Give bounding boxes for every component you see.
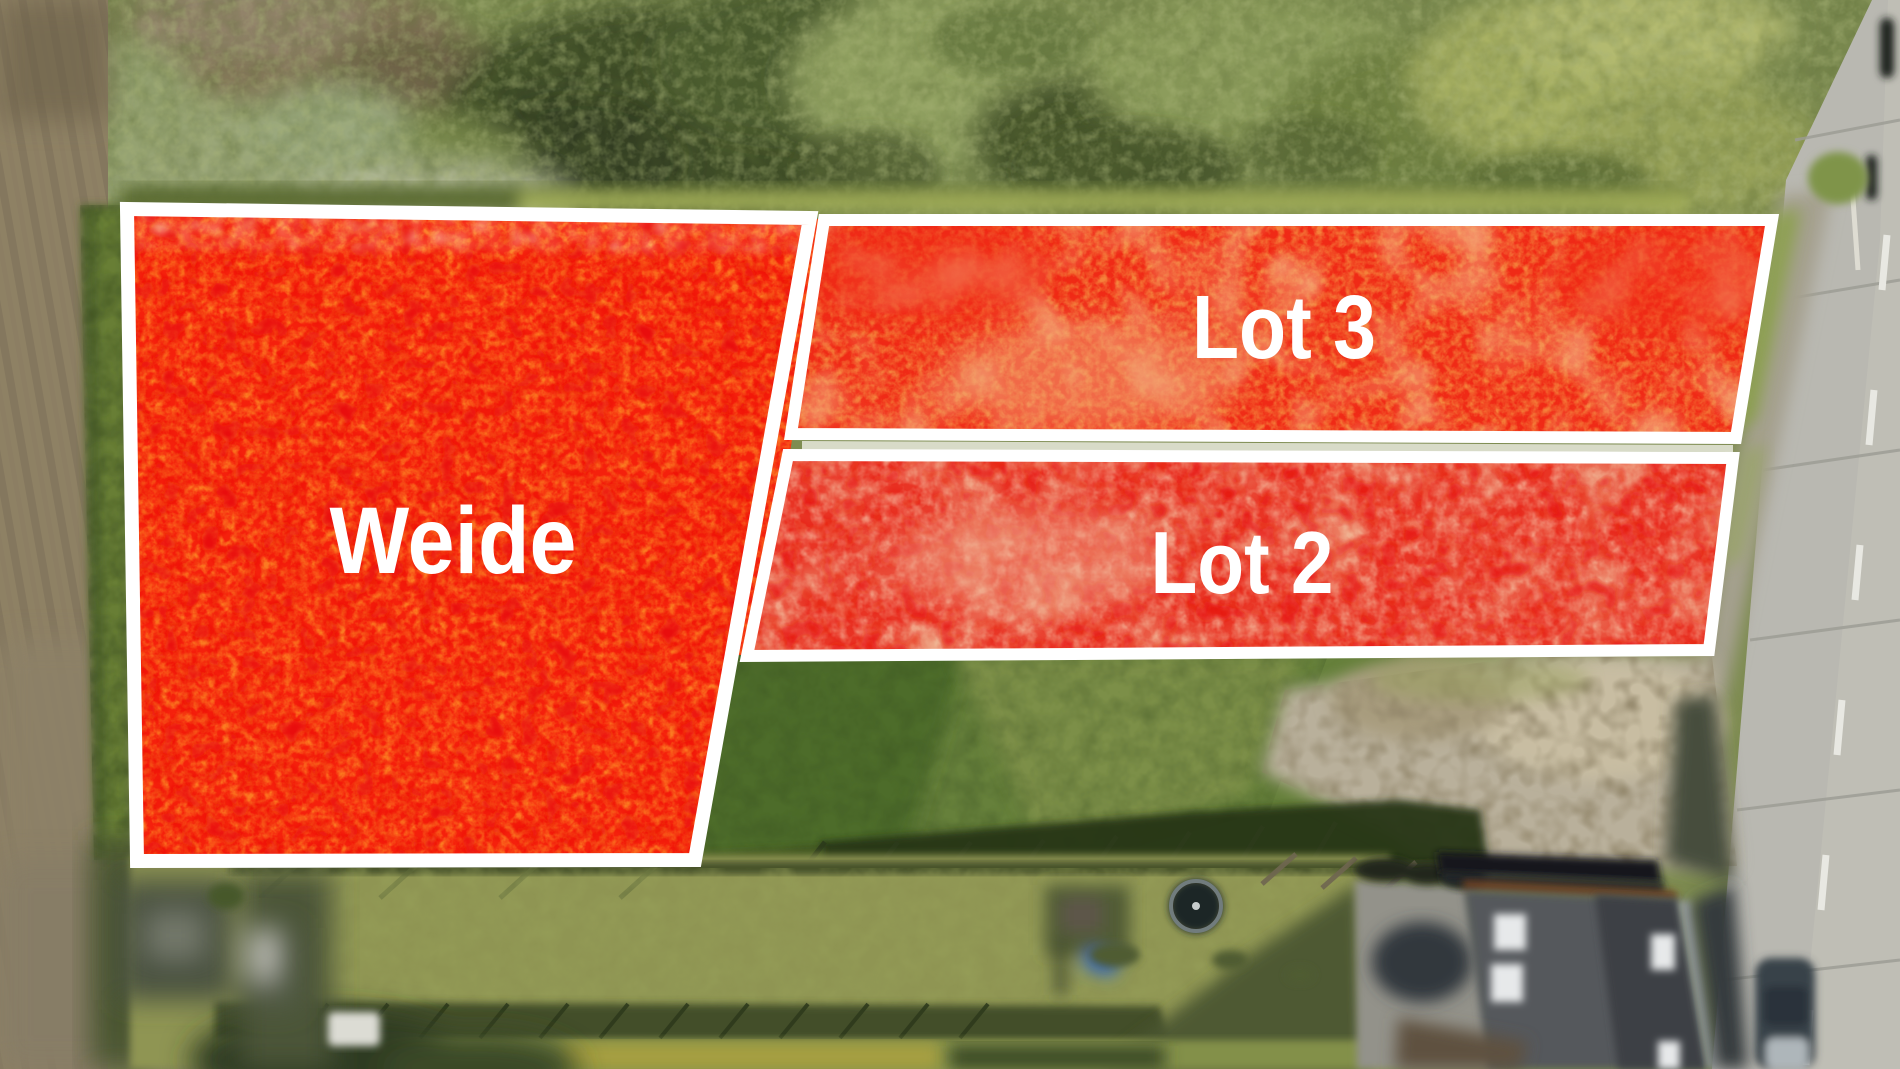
svg-text:Lot 3: Lot 3 (1192, 278, 1376, 378)
svg-text:Lot 2: Lot 2 (1151, 513, 1334, 612)
svg-text:Weide: Weide (330, 488, 577, 594)
